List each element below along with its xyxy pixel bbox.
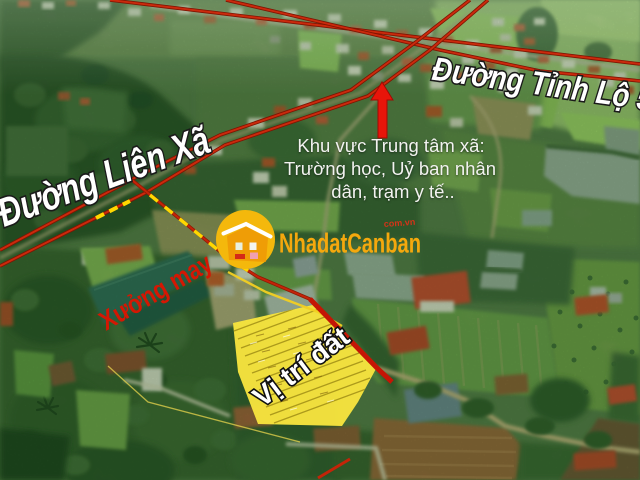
svg-text:NhadatCanban: NhadatCanban bbox=[279, 228, 421, 259]
svg-text:dân, trạm y tế..: dân, trạm y tế.. bbox=[331, 181, 454, 202]
svg-text:Trường học, Uỷ ban nhân: Trường học, Uỷ ban nhân bbox=[284, 158, 496, 179]
svg-text:Khu vực Trung tâm xã:: Khu vực Trung tâm xã: bbox=[297, 135, 484, 156]
